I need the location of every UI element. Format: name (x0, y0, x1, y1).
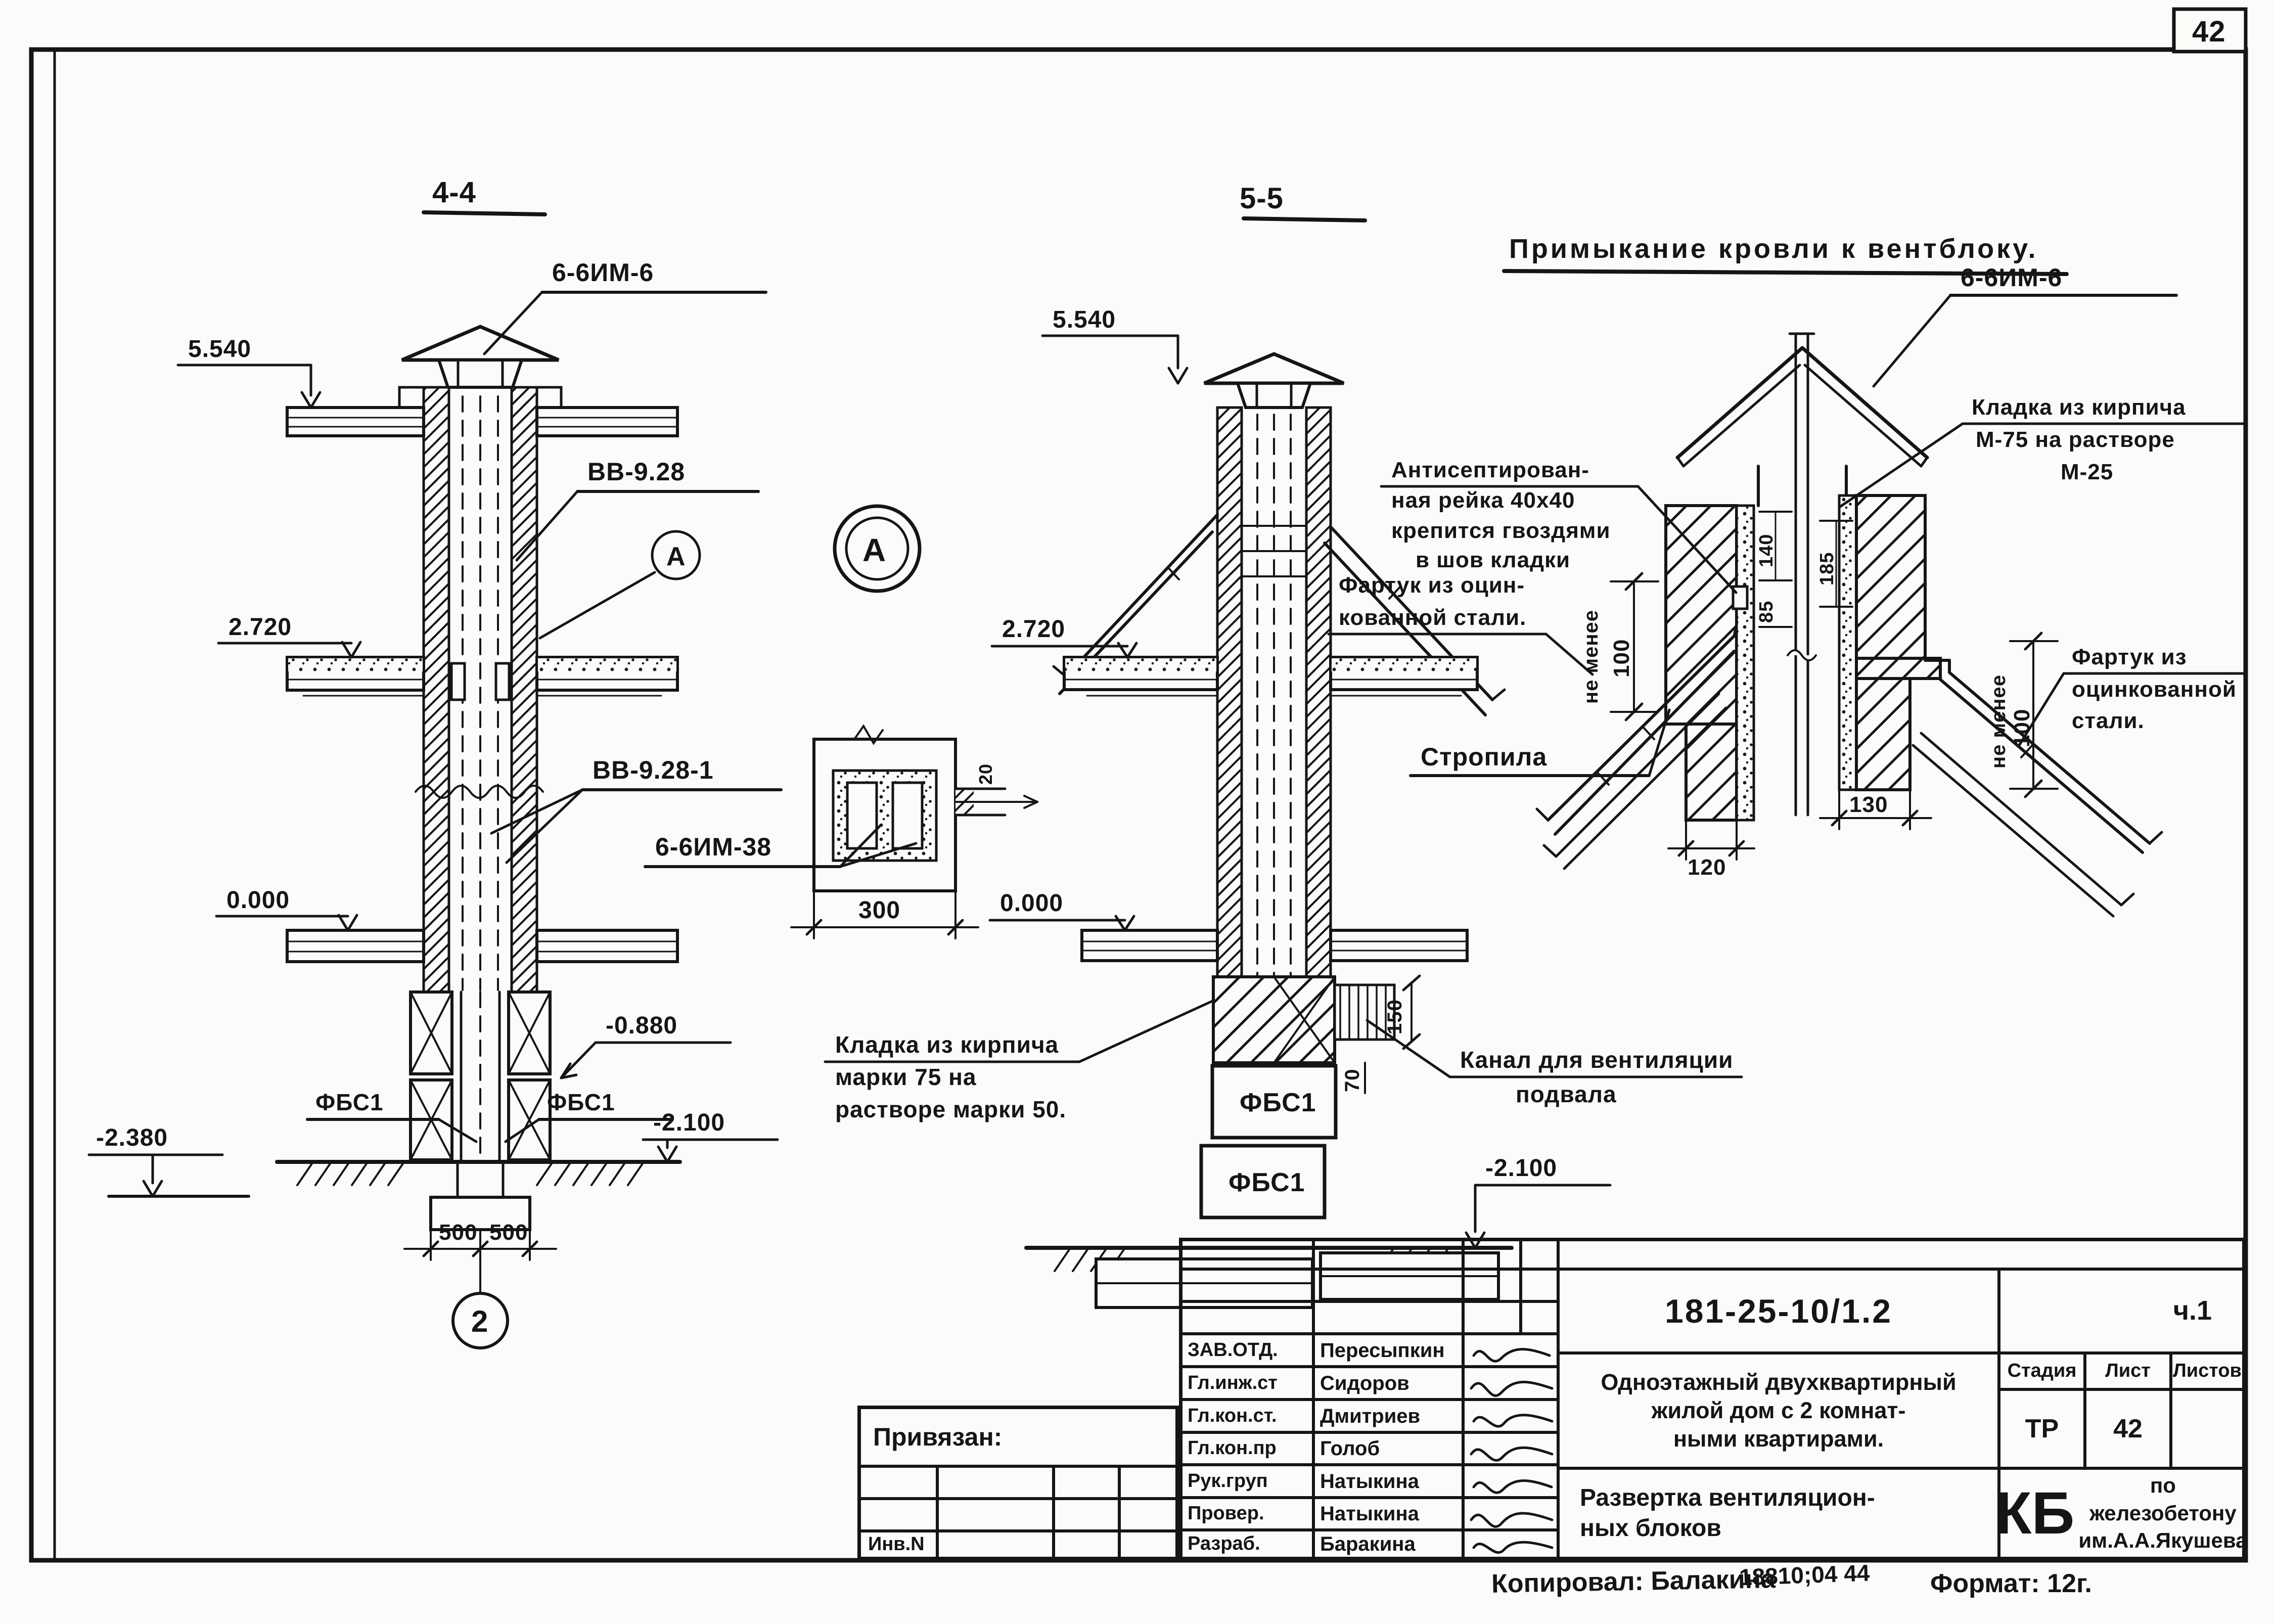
roof-dim-ne-menee-left: не менее (1580, 610, 1602, 704)
project-line: Одноэтажный двухквартирный (1601, 1368, 1956, 1396)
roof-dim-185: 185 (1816, 552, 1838, 585)
sig-name: Пересыпкин (1320, 1335, 1462, 1365)
order-note-caption: 18810;04 44 (1739, 1559, 1870, 1591)
sheet-corner-number: 42 (2192, 15, 2226, 48)
s44-elev-right: -2.100 (653, 1109, 725, 1136)
s44-elev-left: -2.380 (96, 1124, 168, 1151)
detail-a (645, 506, 1037, 938)
s55-note-brick-3: растворе марки 50. (835, 1096, 1066, 1122)
s44-axis-number: 2 (471, 1304, 488, 1338)
sig-role: Гл.инж.ст (1188, 1368, 1312, 1398)
format-note-caption: Формат: 12г. (1930, 1568, 2092, 1599)
sig-role: Гл.кон.ст. (1188, 1401, 1312, 1431)
section-44-title: 4-4 (432, 176, 476, 209)
roof-note-rail-2: ная рейка 40х40 (1391, 488, 1575, 513)
sig-name: Голоб (1320, 1434, 1462, 1463)
section-55-title: 5-5 (1240, 182, 1284, 215)
drawing-title-line: Развертка вентиляцион- (1580, 1483, 1875, 1513)
s55-elev-zero: 0.000 (1000, 890, 1063, 917)
stage-value: ТР (2000, 1391, 2083, 1467)
drawing-title-line: ных блоков (1580, 1513, 1721, 1544)
s44-elev-top: 5.540 (188, 336, 251, 363)
s44-dim-500-right: 500 (489, 1220, 528, 1245)
roof-note-rail-1: Антисептирован- (1391, 458, 1589, 482)
doc-number: 181-25-10/1.2 (1560, 1271, 1997, 1351)
organization-line: им.А.А.Якушева (2078, 1527, 2247, 1555)
s55-elev-ground: -2.100 (1485, 1155, 1557, 1182)
roof-dim-100-left: 100 (1609, 639, 1634, 678)
sig-role: ЗАВ.ОТД. (1188, 1335, 1312, 1365)
s44-dim-500-left: 500 (439, 1220, 477, 1245)
organization: КБ по железобетону им.А.А.Якушева (2000, 1470, 2242, 1557)
s55-note-canal-1: Канал для вентиляции (1460, 1047, 1733, 1073)
s55-fbs-top: ФБС1 (1240, 1088, 1316, 1117)
roof-dim-140: 140 (1756, 534, 1777, 567)
s44-elev-floor: 2.720 (229, 614, 292, 641)
s44-cap-label: 6-6ИМ-6 (552, 258, 654, 287)
roof-note-apron-right-1: Фартук из (2072, 645, 2187, 669)
sig-role: Разраб. (1188, 1531, 1312, 1557)
sig-name: Сидоров (1320, 1368, 1462, 1398)
s55-elev-top: 5.540 (1053, 306, 1116, 333)
detail-a-dim-20: 20 (975, 763, 996, 785)
detail-a-marker: А (862, 532, 886, 568)
roof-note-apron-left-1: Фартук из оцин- (1339, 573, 1525, 598)
s55-note-canal-2: подвала (1516, 1081, 1617, 1107)
roof-detail-title: Примыкание кровли к вентблоку. (1509, 234, 2038, 264)
roof-note-apron-right-2: оцинкованной (2072, 677, 2237, 702)
organization-mark: КБ (1995, 1486, 2075, 1540)
roof-note-brick-3: М-25 (2061, 460, 2113, 484)
s44-elev-zero: 0.000 (226, 887, 290, 914)
s55-fbs-bottom: ФБС1 (1228, 1168, 1305, 1197)
organization-line: по железобетону (2078, 1472, 2247, 1527)
title-block: 181-25-10/1.2 ч.1 Одноэтажный двухкварти… (1179, 1238, 2246, 1560)
roof-dim-130: 130 (1849, 792, 1888, 817)
s55-elev-floor: 2.720 (1002, 616, 1065, 643)
s44-panel-label: ВВ-9.28 (587, 458, 685, 486)
roof-dim-ne-menee-right: не менее (1987, 674, 2010, 769)
roof-dim-100-right: 100 (2010, 709, 2034, 747)
s55-note-brick-2: марки 75 на (835, 1064, 977, 1090)
inventory-label: Инв.N (868, 1532, 934, 1557)
roof-note-rail-4: в шов кладки (1416, 548, 1570, 572)
sig-name: Натыкина (1320, 1499, 1462, 1528)
sig-role: Гл.кон.пр (1188, 1434, 1312, 1463)
sheet-number-value: 42 (2086, 1391, 2169, 1467)
sig-role: Провер. (1188, 1499, 1312, 1528)
project-line: ными квартирами. (1673, 1425, 1884, 1453)
roof-note-apron-right-3: стали. (2072, 708, 2145, 733)
sig-name: Дмитриев (1320, 1401, 1462, 1431)
part-number: ч.1 (2000, 1271, 2242, 1351)
signature-scribbles (1464, 1335, 1555, 1558)
s44-fbs-left: ФБС1 (315, 1089, 384, 1115)
s44-view-marker: А (666, 542, 686, 571)
detail-a-label: 6-6ИМ-38 (655, 833, 771, 861)
s55-dim-70: 70 (1341, 1069, 1363, 1093)
s44-fbs-right: ФБС1 (547, 1089, 615, 1115)
sig-role: Рук.груп (1188, 1466, 1312, 1496)
copied-by-caption: Копировал: Балакина (1491, 1564, 1776, 1599)
project-line: жилой дом с 2 комнат- (1652, 1396, 1906, 1425)
attachment-table: Привязан: Инв.N (857, 1406, 1179, 1560)
roof-dim-85: 85 (1756, 601, 1777, 623)
sheets-total-value (2172, 1391, 2242, 1467)
drawing-sheet: 42 (0, 0, 2275, 1624)
sig-name: Натыкина (1320, 1466, 1462, 1496)
sheets-header: Листов (2172, 1355, 2242, 1388)
roof-note-rail-3: крепится гвоздями (1391, 518, 1611, 543)
s44-panel-label2: ВВ-9.28-1 (593, 756, 714, 784)
sig-name: Баракина (1320, 1531, 1462, 1557)
sheet-header: Лист (2086, 1355, 2169, 1388)
drawing-title: Развертка вентиляцион- ных блоков (1560, 1470, 1997, 1557)
roof-note-brick-2: М-75 на растворе (1976, 427, 2175, 452)
attachment-label: Привязан: (873, 1409, 1126, 1465)
s44-elev-base: -0.880 (606, 1012, 677, 1039)
detail-a-dim-300: 300 (858, 897, 900, 924)
s55-dim-150: 150 (1384, 999, 1406, 1034)
roof-note-rafter: Стропила (1421, 743, 1547, 771)
s55-note-brick-1: Кладка из кирпича (835, 1031, 1059, 1058)
project-name: Одноэтажный двухквартирный жилой дом с 2… (1560, 1355, 1997, 1467)
roof-note-brick-1: Кладка из кирпича (1972, 395, 2186, 420)
roof-cap-label: 6-6ИМ-6 (1961, 263, 2062, 292)
stage-header: Стадия (2000, 1355, 2083, 1388)
roof-dim-120: 120 (1688, 855, 1726, 880)
roof-note-apron-left-2: кованной стали. (1339, 605, 1526, 630)
